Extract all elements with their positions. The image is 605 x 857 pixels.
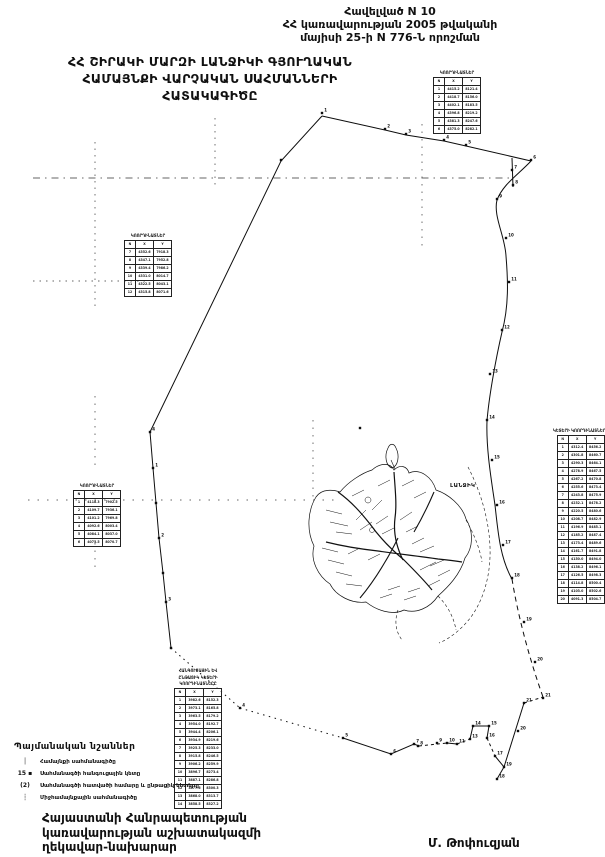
boundary-point-marker: [239, 707, 241, 709]
table-cell: 4092.6: [85, 522, 103, 530]
table-cell: 8478.2: [586, 499, 604, 507]
table-row: 84232.18478.2: [557, 499, 604, 507]
table-cell: 8156.0: [463, 93, 481, 101]
table-cell: 4084.1: [85, 530, 103, 538]
table-cell: 4: [74, 522, 85, 530]
boundary-point-marker: [155, 502, 157, 504]
coordinate-table-header: ԸՆԹԱՑԻԿ ԿԵՏԵՐԻ: [174, 675, 222, 680]
table-cell: 8070.7: [103, 538, 121, 546]
table-cell: 8192.7: [204, 720, 222, 728]
legend-item-label: Սահմանագծի հանգուցային կետը: [40, 771, 140, 777]
table-row: 54267.28470.8: [557, 475, 604, 483]
boundary-point-marker: [491, 459, 493, 461]
signature-line: Հայաստանի Հանրապետության: [42, 811, 261, 826]
table-row: 43954.08192.7: [175, 720, 222, 728]
segment-number-symbol: (2): [10, 782, 40, 789]
boundary-point-number: 7: [514, 164, 517, 169]
boundary-point-marker: [465, 144, 467, 146]
boundary-point-number: 17: [505, 539, 511, 544]
boundary-point-number: 1: [155, 462, 158, 467]
boundary-point-number: 18: [499, 773, 505, 778]
table-cell: 17: [557, 571, 568, 579]
table-cell: Y: [463, 77, 481, 85]
legend-title: Պայմանական նշաններ: [14, 742, 210, 752]
table-row: 184114.88500.4: [557, 579, 604, 587]
boundary-point-number: 2: [161, 532, 164, 537]
coordinate-table: ԿՈՈՐԴԻՆԱՏՆԵՐNXY74352.67918.384347.17952.…: [124, 233, 172, 297]
table-cell: 4: [434, 109, 445, 117]
boundary-point-number: 15: [491, 720, 497, 725]
legend: Պայմանական նշաններ │ Համայնքի սահմանագիծ…: [10, 742, 210, 806]
boundary-point-number: 13: [492, 368, 498, 373]
table-cell: 11: [557, 523, 568, 531]
signature-block: Հայաստանի Հանրապետության կառավարության ա…: [42, 811, 261, 855]
table-row: 44092.68003.4: [74, 522, 121, 530]
boundary-point-marker: [149, 431, 151, 433]
table-row: 74243.88475.9: [557, 491, 604, 499]
boundary-point-marker: [496, 198, 498, 200]
table-cell: 4402.1: [445, 101, 463, 109]
boundary-point-marker: [359, 427, 361, 429]
table-cell: 8480.6: [586, 507, 604, 515]
boundary-point-number: 13: [472, 733, 478, 738]
table-cell: 8491.8: [586, 547, 604, 555]
boundary-point-number: 4: [446, 134, 449, 139]
table-cell: 8504.7: [586, 595, 604, 603]
table-cell: 8482.9: [586, 515, 604, 523]
table-cell: N: [74, 490, 85, 498]
table-cell: 3: [557, 459, 568, 467]
boundary-point-number: 21: [545, 692, 551, 697]
annex-header-line: մայիսի 25-ի N 776-Ն որոշման: [175, 31, 605, 44]
table-cell: 8473.4: [586, 483, 604, 491]
boundary-point-marker: [534, 661, 536, 663]
boundary-point-marker: [469, 738, 471, 740]
table-row: 154150.08494.0: [557, 555, 604, 563]
table-cell: 4396.8: [445, 109, 463, 117]
table-cell: 2: [557, 451, 568, 459]
boundary-point-number: 12: [504, 324, 510, 329]
table-cell: N: [175, 688, 186, 696]
table-cell: 9: [125, 264, 136, 272]
table-row: 134173.48489.6: [557, 539, 604, 547]
table-cell: 7902.5: [103, 498, 121, 506]
table-row: NXY: [175, 688, 222, 696]
table-cell: 10: [125, 272, 136, 280]
table-row: 114322.58043.1: [125, 280, 172, 288]
boundary-point-number: 21: [526, 697, 532, 702]
table-cell: 8179.2: [204, 712, 222, 720]
table-cell: 5: [557, 475, 568, 483]
boundary-point-marker: [501, 329, 503, 331]
table-row: 23973.18165.8: [175, 704, 222, 712]
boundary-point-marker: [158, 537, 160, 539]
table-row: 104331.08014.7: [125, 272, 172, 280]
table-cell: 4: [175, 720, 186, 728]
table-cell: 8500.4: [586, 579, 604, 587]
boundary-point-number: 16: [489, 732, 495, 737]
table-row: 64255.68473.4: [557, 483, 604, 491]
boundary-point-marker: [405, 133, 407, 135]
table-cell: 14: [557, 547, 568, 555]
boundary-point-number: 9: [439, 737, 442, 742]
annex-header-line: Հավելված N 10: [175, 5, 605, 18]
table-cell: 3963.5: [186, 712, 204, 720]
table-cell: Y: [204, 688, 222, 696]
table-row: NXY: [74, 490, 121, 498]
table-cell: 4138.2: [568, 563, 586, 571]
table-cell: 6: [557, 483, 568, 491]
table-cell: 8487.4: [586, 531, 604, 539]
table-cell: 5: [175, 728, 186, 736]
boundary-point-marker: [512, 184, 514, 186]
table-cell: X: [186, 688, 204, 696]
cadastral-map-page: 1234567891011121314151617181920214123456…: [0, 0, 605, 857]
table-cell: N: [125, 240, 136, 248]
table-cell: 4075.5: [85, 538, 103, 546]
table-cell: 4: [557, 467, 568, 475]
boundary-point-number: 9: [499, 193, 502, 198]
table-cell: 8206.1: [204, 728, 222, 736]
table-cell: 4255.6: [568, 483, 586, 491]
table-cell: 4415.2: [445, 85, 463, 93]
table-cell: Y: [103, 490, 121, 498]
boundary-point-marker: [417, 745, 419, 747]
table-cell: 9: [557, 507, 568, 515]
table-cell: 1: [74, 498, 85, 506]
signer-name: Մ. Թոփուզյան: [428, 836, 520, 850]
table-row: 34290.38464.1: [557, 459, 604, 467]
table-row: 24109.77936.1: [74, 506, 121, 514]
table-cell: 8496.1: [586, 563, 604, 571]
table-cell: 4173.4: [568, 539, 586, 547]
boundary-point-marker: [436, 742, 438, 744]
map-canvas: 1234567891011121314151617181920214123456…: [0, 0, 605, 857]
boundary-point-number: 5: [468, 139, 471, 144]
table-cell: 8485.1: [586, 523, 604, 531]
table-cell: 4315.8: [136, 288, 154, 296]
legend-item-label: Միջհամայնքային սահմանագիծը: [40, 795, 137, 801]
table-cell: 4418.7: [445, 93, 463, 101]
table-cell: 8460.7: [586, 451, 604, 459]
map-title-line: ՀԱՄԱՅՆՔԻ ՎԱՐՉԱԿԱՆ ՍԱՀՄԱՆՆԵՐԻ: [25, 70, 395, 87]
table-cell: 3973.1: [186, 704, 204, 712]
table-cell: 5: [434, 117, 445, 125]
table-cell: 6: [434, 125, 445, 133]
table-cell: 8498.3: [586, 571, 604, 579]
boundary-point-marker: [280, 159, 282, 161]
table-cell: 4114.8: [568, 579, 586, 587]
table-cell: 7: [125, 248, 136, 256]
table-row: 14415.28121.4: [434, 85, 481, 93]
table-cell: 4118.3: [85, 498, 103, 506]
table-cell: 4347.1: [136, 256, 154, 264]
table-cell: 4290.3: [568, 459, 586, 467]
coordinate-table-grid: NXY14312.48456.224301.88460.734290.38464…: [557, 435, 605, 604]
boundary-point-marker: [472, 725, 474, 727]
boundary-point-marker: [170, 647, 172, 649]
table-cell: 8183.5: [463, 101, 481, 109]
table-cell: 3: [74, 514, 85, 522]
table-cell: 4220.5: [568, 507, 586, 515]
junction-point-symbol: 15 ▪: [10, 770, 40, 777]
annex-header: Հավելված N 10 ՀՀ կառավարության 2005 թվակ…: [175, 5, 605, 44]
table-cell: 1: [434, 85, 445, 93]
signature-line: ղեկավար-նախարար: [42, 840, 261, 855]
table-cell: 4301.8: [568, 451, 586, 459]
boundary-point-marker: [502, 544, 504, 546]
coordinate-table-header: ՀԱՆԳՈՒՑԱՅԻՆ ԵՎ: [174, 668, 222, 673]
table-cell: 4196.9: [568, 523, 586, 531]
table-cell: 8502.6: [586, 587, 604, 595]
coordinate-table: ԿՈՈՐԴԻՆԱՏՆԵՐNXY14118.37902.524109.77936.…: [73, 483, 121, 547]
boundary-point-number: 10: [508, 232, 514, 237]
table-cell: 8467.5: [586, 467, 604, 475]
table-cell: 8071.6: [154, 288, 172, 296]
boundary-point-number: 20: [520, 725, 526, 730]
table-row: 164138.28496.1: [557, 563, 604, 571]
table-cell: 8247.6: [463, 117, 481, 125]
table-row: 14118.37902.5: [74, 498, 121, 506]
table-cell: 4150.0: [568, 555, 586, 563]
boundary-point-marker: [523, 702, 525, 704]
table-row: 54084.18037.0: [74, 530, 121, 538]
boundary-point-number: 11: [511, 276, 517, 281]
table-cell: 8121.4: [463, 85, 481, 93]
boundary-point-number: 5: [345, 732, 348, 737]
table-row: 174126.58498.3: [557, 571, 604, 579]
table-row: 33963.58179.2: [175, 712, 222, 720]
table-cell: 8456.2: [586, 443, 604, 451]
table-row: 204091.38504.7: [557, 595, 604, 603]
coordinate-table-header: ԿՈՈՐԴԻՆԱՏՆԵՐ: [73, 483, 121, 488]
boundary-point-marker: [162, 572, 164, 574]
boundary-point-number: 4: [152, 426, 155, 431]
table-row: 74352.67918.3: [125, 248, 172, 256]
table-row: 13982.68152.3: [175, 696, 222, 704]
table-cell: 8: [557, 499, 568, 507]
settlement-label: ԼԱՆՋԻԿ: [450, 483, 475, 489]
table-cell: 13: [557, 539, 568, 547]
coordinate-table-header: ԿԵՏԵՐԻ ԿՈՈՐԴԻՆԱՏՆԵՐԸ: [553, 428, 605, 433]
table-cell: 8: [125, 256, 136, 264]
table-row: 124185.28487.4: [557, 531, 604, 539]
table-row: 84347.17952.8: [125, 256, 172, 264]
coordinate-table-header: ԿՈՈՐԴԻՆԱՏՆԵՐ: [124, 233, 172, 238]
table-cell: 8043.1: [154, 280, 172, 288]
table-row: 24418.78156.0: [434, 93, 481, 101]
table-cell: 5: [74, 530, 85, 538]
table-cell: N: [434, 77, 445, 85]
boundary-point-marker: [511, 577, 513, 579]
table-row: 54381.38247.6: [434, 117, 481, 125]
table-cell: 15: [557, 555, 568, 563]
table-row: 53944.48206.1: [175, 728, 222, 736]
map-title-line: ՀՀ ՇԻՐԱԿԻ ՄԱՐԶԻ ԼԱՆՋԻԿԻ ԳՅՈՒՂԱԿԱՆ: [25, 53, 395, 70]
table-cell: 4381.3: [445, 117, 463, 125]
table-cell: Y: [154, 240, 172, 248]
table-cell: 19: [557, 587, 568, 595]
map-title: ՀՀ ՇԻՐԱԿԻ ՄԱՐԶԻ ԼԱՆՋԻԿԻ ԳՅՈՒՂԱԿԱՆ ՀԱՄԱՅՆ…: [25, 53, 395, 104]
table-cell: X: [85, 490, 103, 498]
legend-item-label: Սահմանագծի հատվածի համարը և ընթացիկ կետե…: [40, 783, 199, 789]
table-row: 124315.88071.6: [125, 288, 172, 296]
table-cell: 4375.0: [445, 125, 463, 133]
boundary-point-marker: [496, 504, 498, 506]
boundary-point-marker: [413, 743, 415, 745]
coordinate-table: ԿՈՈՐԴԻՆԱՏՆԵՐNXY14415.28121.424418.78156.…: [433, 70, 481, 134]
boundary-point-marker: [505, 237, 507, 239]
boundary-point-marker: [496, 778, 498, 780]
table-cell: 8152.3: [204, 696, 222, 704]
table-cell: 7952.8: [154, 256, 172, 264]
table-row: 34101.27969.8: [74, 514, 121, 522]
table-cell: 11: [125, 280, 136, 288]
boundary-point-number: 14: [475, 720, 481, 725]
table-cell: X: [568, 435, 586, 443]
intercommunity-boundary-symbol: ┆: [10, 794, 40, 801]
boundary-point-number: 6: [393, 748, 396, 753]
coordinate-table-header: ԿՈՈՐԴԻՆԱՏՆԵՐ: [433, 70, 481, 75]
table-cell: 8470.8: [586, 475, 604, 483]
table-row: 64375.08282.1: [434, 125, 481, 133]
table-cell: 4331.0: [136, 272, 154, 280]
table-cell: 1: [175, 696, 186, 704]
table-row: 94220.58480.6: [557, 507, 604, 515]
table-cell: 1: [557, 443, 568, 451]
table-cell: 12: [557, 531, 568, 539]
legend-item: (2) Սահմանագծի հատվածի համարը և ընթացիկ …: [10, 782, 210, 789]
table-cell: 3982.6: [186, 696, 204, 704]
boundary-point-number: 18: [514, 572, 520, 577]
boundary-point-number: 1: [324, 107, 327, 112]
boundary-point-number: 3: [168, 596, 171, 601]
table-cell: 3: [434, 101, 445, 109]
table-cell: 4185.2: [568, 531, 586, 539]
boundary-point-marker: [503, 766, 505, 768]
boundary-point-marker: [489, 373, 491, 375]
table-cell: 7918.3: [154, 248, 172, 256]
table-cell: 8464.1: [586, 459, 604, 467]
table-cell: 4352.6: [136, 248, 154, 256]
table-row: 194103.08502.6: [557, 587, 604, 595]
boundary-point-marker: [511, 169, 513, 171]
boundary-point-marker: [530, 159, 532, 161]
table-row: NXY: [125, 240, 172, 248]
boundary-point-number: 11: [459, 738, 465, 743]
boundary-point-number: 15: [494, 454, 500, 459]
boundary-point-marker: [488, 725, 490, 727]
table-cell: 6: [74, 538, 85, 546]
coordinate-table-grid: NXY14415.28121.424418.78156.034402.18183…: [433, 77, 481, 134]
table-cell: 4339.4: [136, 264, 154, 272]
table-cell: 7969.8: [103, 514, 121, 522]
table-cell: 8219.2: [463, 109, 481, 117]
boundary-point-marker: [494, 755, 496, 757]
table-cell: 8489.6: [586, 539, 604, 547]
table-row: 24301.88460.7: [557, 451, 604, 459]
boundary-point-marker: [321, 112, 323, 114]
boundary-point-marker: [165, 601, 167, 603]
table-cell: Y: [586, 435, 604, 443]
boundary-point-number: 16: [499, 499, 505, 504]
table-cell: 4312.4: [568, 443, 586, 451]
table-cell: 2: [175, 704, 186, 712]
signature-line: կառավարության աշխատակազմի: [42, 826, 261, 841]
table-cell: 8037.0: [103, 530, 121, 538]
table-row: 14312.48456.2: [557, 443, 604, 451]
table-cell: 7986.2: [154, 264, 172, 272]
table-row: 64075.58070.7: [74, 538, 121, 546]
boundary-point-number: 3: [408, 128, 411, 133]
table-cell: 7: [557, 491, 568, 499]
table-cell: 20: [557, 595, 568, 603]
table-cell: 16: [557, 563, 568, 571]
boundary-point-marker: [443, 139, 445, 141]
legend-item: │ Համայնքի սահմանագիծը: [10, 758, 210, 765]
table-row: 44278.98467.5: [557, 467, 604, 475]
table-cell: 8014.7: [154, 272, 172, 280]
boundary-point-marker: [542, 697, 544, 699]
annex-header-line: ՀՀ կառավարության 2005 թվականի: [175, 18, 605, 31]
table-cell: N: [557, 435, 568, 443]
boundary-point-number: 8: [420, 740, 423, 745]
boundary-point-marker: [390, 753, 392, 755]
table-row: 94339.47986.2: [125, 264, 172, 272]
boundary-point-number: 10: [449, 737, 455, 742]
coordinate-table: ԿԵՏԵՐԻ ԿՈՈՐԴԻՆԱՏՆԵՐԸNXY14312.48456.22430…: [553, 428, 605, 604]
table-cell: 4208.7: [568, 515, 586, 523]
table-cell: 4109.7: [85, 506, 103, 514]
coordinate-table-header: ԿՈՈՐԴԻՆԱՏՆԵՐԸ: [174, 681, 222, 686]
boundary-point-marker: [523, 621, 525, 623]
table-row: 104208.78482.9: [557, 515, 604, 523]
table-cell: 4243.8: [568, 491, 586, 499]
boundary-point-number: 14: [489, 414, 495, 419]
boundary-point-number: 17: [497, 750, 503, 755]
table-cell: 4322.5: [136, 280, 154, 288]
table-cell: 4232.1: [568, 499, 586, 507]
legend-item-label: Համայնքի սահմանագիծը: [40, 759, 116, 765]
boundary-point-number: 8: [515, 179, 518, 184]
legend-item: 15 ▪ Սահմանագծի հանգուցային կետը: [10, 770, 210, 777]
table-cell: X: [445, 77, 463, 85]
table-cell: 4101.2: [85, 514, 103, 522]
boundary-point-number: 6: [533, 154, 536, 159]
table-cell: 4161.7: [568, 547, 586, 555]
boundary-point-marker: [384, 128, 386, 130]
boundary-point-marker: [456, 743, 458, 745]
table-cell: 8494.0: [586, 555, 604, 563]
table-cell: 2: [74, 506, 85, 514]
table-cell: 10: [557, 515, 568, 523]
boundary-point-marker: [517, 730, 519, 732]
table-cell: 8475.9: [586, 491, 604, 499]
table-row: NXY: [434, 77, 481, 85]
table-row: 34402.18183.5: [434, 101, 481, 109]
boundary-point-marker: [486, 737, 488, 739]
boundary-point-marker: [508, 281, 510, 283]
boundary-point-number: 2: [387, 123, 390, 128]
table-row: 144161.78491.8: [557, 547, 604, 555]
table-cell: 4267.2: [568, 475, 586, 483]
table-cell: 12: [125, 288, 136, 296]
boundary-point-number: 19: [526, 616, 532, 621]
boundary-point-number: 20: [537, 656, 543, 661]
table-cell: X: [136, 240, 154, 248]
table-cell: 4126.5: [568, 571, 586, 579]
boundary-point-number: 19: [506, 761, 512, 766]
